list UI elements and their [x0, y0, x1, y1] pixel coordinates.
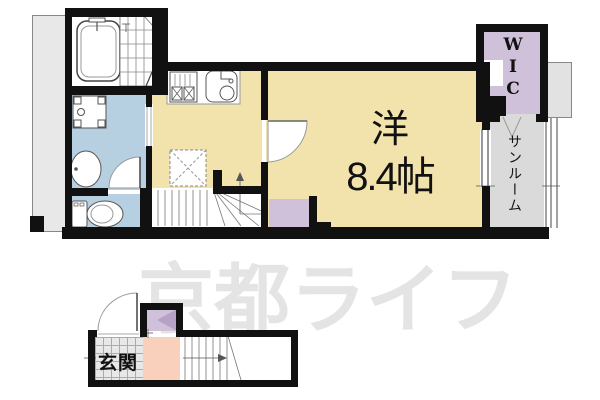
- main-room-size: 8.4帖: [320, 144, 460, 202]
- washing-machine-pan-icon: [73, 96, 106, 128]
- stove-icon: [170, 72, 197, 102]
- washbasin-icon: [71, 151, 101, 187]
- wall-segment: [261, 71, 268, 120]
- stairs-1f: [183, 336, 241, 380]
- wall-segment: [140, 188, 152, 196]
- wall-segment-1f: [88, 330, 95, 387]
- kitchen-counter: [167, 68, 240, 104]
- wall-segment: [65, 86, 168, 95]
- wic-letter: C: [500, 78, 526, 100]
- shoe-closet-wall: [140, 303, 147, 337]
- washer-space-dashed: [170, 150, 206, 186]
- entrance-label: 玄関: [98, 348, 138, 375]
- wic-wall: [536, 114, 548, 122]
- wall-segment: [152, 8, 168, 86]
- wall-segment: [65, 8, 72, 232]
- sunroom-label: サンルーム: [505, 134, 525, 226]
- wall-segment-1f: [88, 380, 298, 387]
- wall-segment: [140, 196, 152, 230]
- floor-plan: 京都ライフ: [0, 0, 600, 400]
- wall-segment: [213, 186, 268, 194]
- wall-segment-1f: [183, 330, 298, 337]
- wall-segment: [62, 227, 549, 239]
- shower-tiles: [120, 16, 156, 86]
- wall-segment: [482, 186, 490, 230]
- wic-label: W I C: [500, 34, 526, 100]
- wall-segment: [309, 196, 317, 230]
- wall-segment: [153, 62, 484, 71]
- toilet-icon: [72, 201, 123, 227]
- washroom-kitchen-doorway: [145, 104, 153, 147]
- wall-segment: [30, 216, 44, 232]
- right-arrow: [183, 354, 227, 362]
- main-room-door: [268, 121, 307, 162]
- wall-segment-1f: [291, 330, 298, 387]
- shoe-closet-wall: [176, 303, 183, 337]
- wall-segment: [261, 162, 268, 228]
- washroom-door: [109, 157, 140, 188]
- wic-letter: I: [500, 56, 526, 78]
- wic-wall: [540, 24, 548, 116]
- sink-icon: [206, 71, 237, 102]
- wic-letter: W: [500, 34, 526, 56]
- bathtub-icon: [77, 18, 120, 81]
- shoe-closet-door: [144, 309, 177, 338]
- wall-segment: [146, 93, 152, 107]
- wall-segment: [65, 188, 108, 196]
- wic-wall: [476, 24, 548, 32]
